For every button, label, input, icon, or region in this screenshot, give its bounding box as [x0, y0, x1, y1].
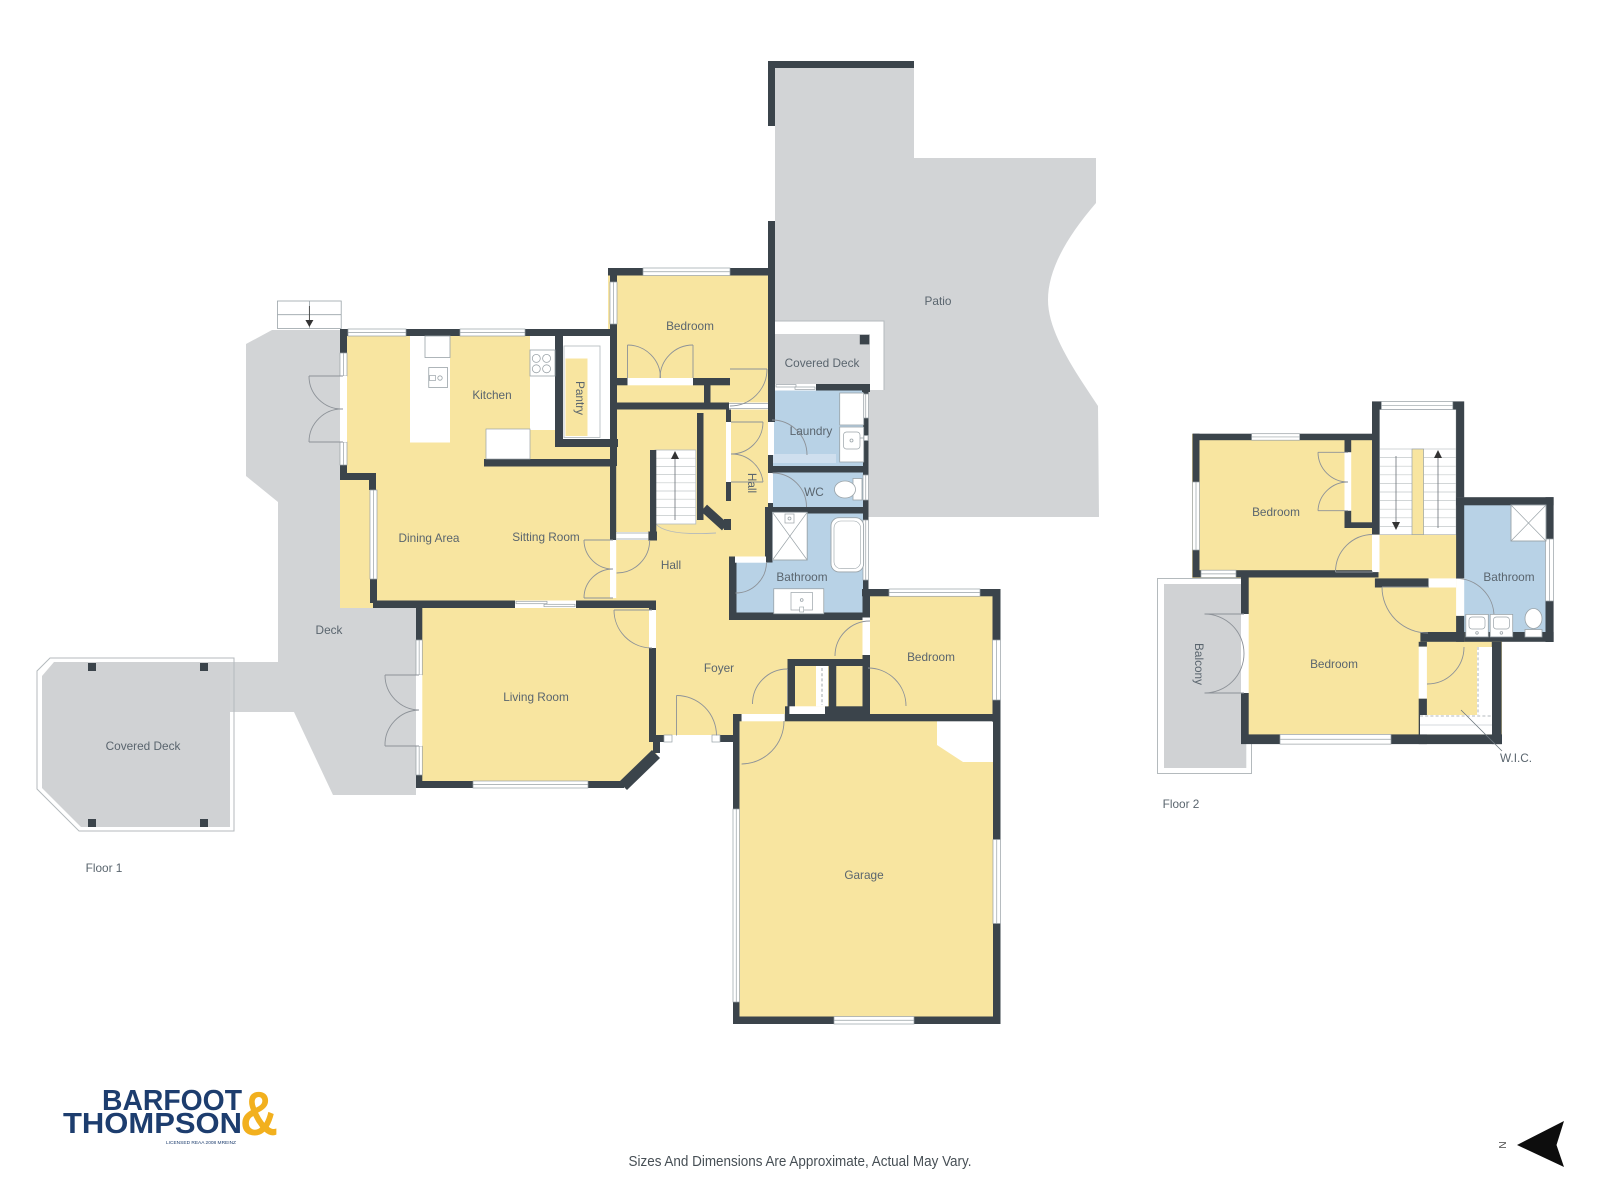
svg-text:&: & — [240, 1080, 278, 1149]
svg-text:Pantry: Pantry — [573, 381, 587, 415]
svg-text:Bathroom: Bathroom — [1483, 570, 1534, 584]
svg-text:Covered Deck: Covered Deck — [785, 356, 860, 370]
svg-text:Deck: Deck — [316, 623, 343, 637]
svg-text:Hall: Hall — [661, 558, 681, 572]
svg-text:Hall: Hall — [745, 473, 759, 493]
svg-text:Patio: Patio — [925, 294, 952, 308]
svg-text:Kitchen: Kitchen — [472, 388, 511, 402]
svg-text:Foyer: Foyer — [704, 661, 734, 675]
svg-text:Balcony: Balcony — [1192, 643, 1206, 685]
svg-text:WC: WC — [804, 485, 824, 499]
svg-text:Dining Area: Dining Area — [399, 531, 460, 545]
svg-text:Garage: Garage — [844, 868, 884, 882]
svg-text:THOMPSON: THOMPSON — [63, 1108, 242, 1140]
svg-text:Floor 1: Floor 1 — [86, 861, 123, 875]
svg-text:Sizes And Dimensions Are Appro: Sizes And Dimensions Are Approximate, Ac… — [629, 1153, 972, 1170]
svg-text:W.I.C.: W.I.C. — [1500, 751, 1532, 765]
svg-text:Sitting Room: Sitting Room — [512, 530, 580, 544]
svg-text:Covered Deck: Covered Deck — [106, 739, 181, 753]
svg-text:N: N — [1498, 1141, 1509, 1148]
svg-text:Bedroom: Bedroom — [907, 650, 955, 664]
svg-text:Living Room: Living Room — [503, 690, 569, 704]
svg-text:Bathroom: Bathroom — [776, 570, 827, 584]
svg-text:LICENSED REAA 2008 MREINZ: LICENSED REAA 2008 MREINZ — [166, 1140, 236, 1146]
svg-text:Bedroom: Bedroom — [1252, 505, 1300, 519]
svg-text:Bedroom: Bedroom — [1310, 657, 1358, 671]
svg-text:Floor 2: Floor 2 — [1163, 797, 1200, 811]
svg-text:Bedroom: Bedroom — [666, 319, 714, 333]
svg-text:Laundry: Laundry — [790, 424, 833, 438]
